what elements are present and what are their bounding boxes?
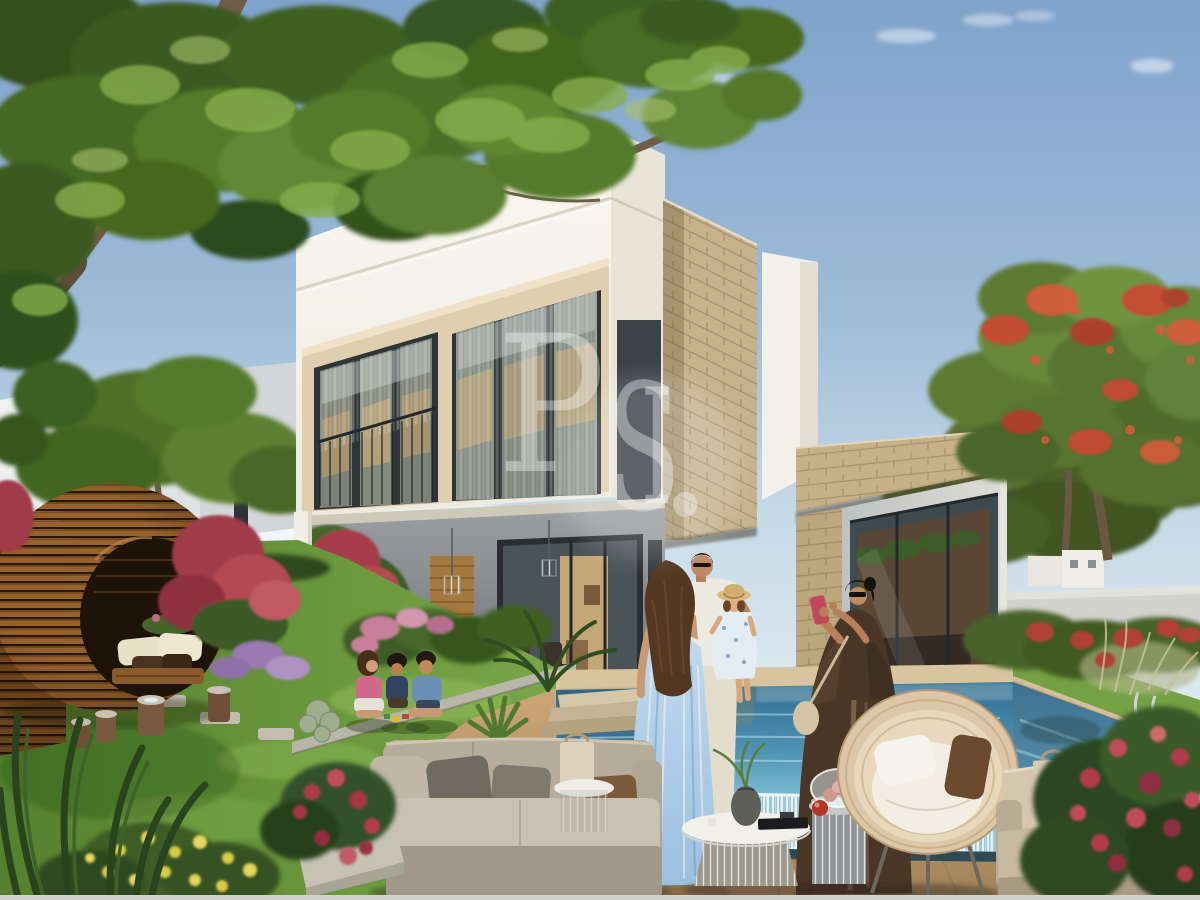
watermark-dot: .: [655, 354, 715, 544]
bottom-edge-strip: [0, 895, 1200, 900]
villa-rendering: P S I .: [0, 0, 1200, 900]
boy-navy: [386, 653, 408, 708]
outdoor-sofa: [370, 739, 670, 900]
watermark-letter-p: P: [497, 311, 606, 501]
